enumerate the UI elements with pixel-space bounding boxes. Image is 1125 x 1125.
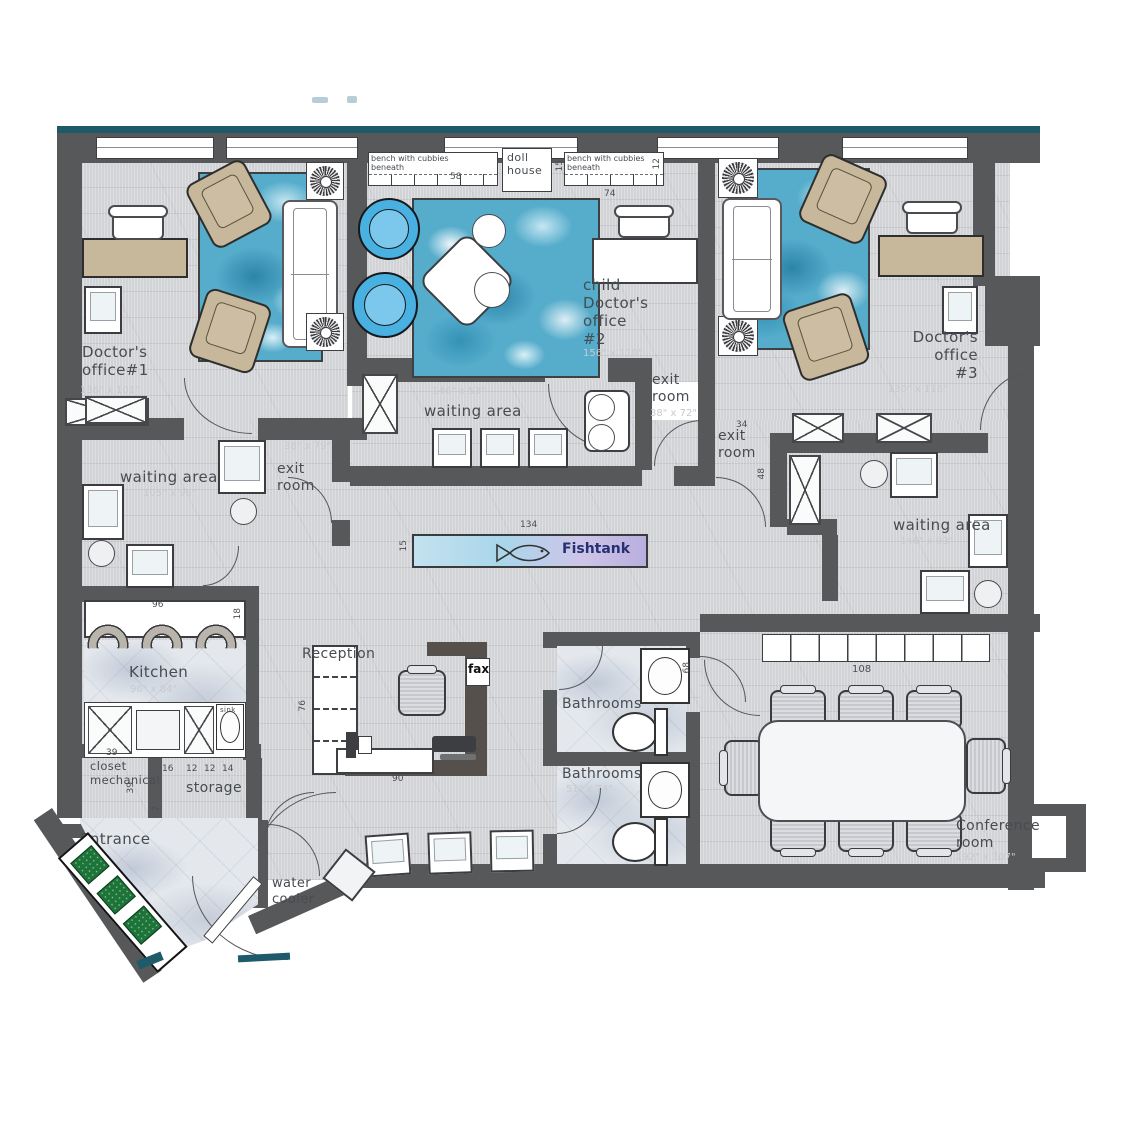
exit-right-hdim: 48 xyxy=(757,468,767,479)
storage-d1: 16 xyxy=(162,764,173,774)
office2-dim: 156" x 110" xyxy=(583,348,643,359)
bathroom-hdim: 68 xyxy=(682,662,692,673)
office1-dim: 136" x 101" xyxy=(80,385,140,396)
sink-label: sink xyxy=(220,706,236,714)
door-arc xyxy=(192,876,288,960)
round-table xyxy=(974,580,1002,608)
blue-chair xyxy=(352,272,418,338)
cabinet-crossed xyxy=(789,455,821,525)
window xyxy=(657,137,779,159)
floor-plan: Doctor's office#1 136" x 101" bench with… xyxy=(0,0,1125,1125)
reception-chair xyxy=(398,670,446,716)
waiting-right-label: waiting area xyxy=(893,516,991,534)
desk-office3 xyxy=(878,235,984,277)
wall xyxy=(258,418,367,440)
reception-label: Reception xyxy=(302,646,375,663)
closet-label: closet mechanical xyxy=(90,760,160,788)
side-chair xyxy=(942,286,978,334)
wall xyxy=(700,614,1040,632)
smudge-mark xyxy=(347,96,357,103)
smudge-mark xyxy=(312,97,328,103)
conference-dim: 192" x 107" xyxy=(956,852,1016,863)
waiting-chair xyxy=(490,830,535,873)
stool xyxy=(474,272,510,308)
stool xyxy=(588,424,615,451)
wall xyxy=(543,690,557,754)
cabinet-shelf xyxy=(136,710,180,750)
office2-label: child Doctor's office #2 xyxy=(583,276,648,348)
waiting-center-dim: 146" x 53" xyxy=(432,386,485,397)
wall xyxy=(822,535,838,601)
waiting-chair xyxy=(427,831,472,875)
storage-label: storage xyxy=(186,780,242,797)
plant-fan xyxy=(718,316,758,356)
conference-table xyxy=(758,720,966,822)
window xyxy=(96,137,214,159)
cabinet-crossed xyxy=(792,413,844,443)
round-table xyxy=(230,498,257,525)
bench-right-hdim: 12 xyxy=(652,158,662,169)
planter-cushion xyxy=(96,875,136,915)
toilet-bowl xyxy=(612,822,658,862)
cabinet-crossed xyxy=(362,374,398,434)
bench-left-label: bench with cubbies beneath xyxy=(371,155,449,173)
waiting-chair xyxy=(890,452,938,498)
waiting-chair xyxy=(126,544,174,588)
wall xyxy=(543,632,700,646)
storage-d4: 14 xyxy=(222,764,233,774)
desk-chair xyxy=(906,208,958,234)
waiting-chair xyxy=(480,428,520,468)
printer-tray xyxy=(440,754,476,760)
storage-d3: 12 xyxy=(204,764,215,774)
storage-d2: 12 xyxy=(186,764,197,774)
wall xyxy=(347,160,367,386)
planter-cushion xyxy=(70,845,110,885)
cabinet-crossed xyxy=(85,396,147,424)
waiting-chair xyxy=(920,570,970,614)
office3-label: Doctor's office #3 xyxy=(868,328,978,382)
bench-left-dim: 58 xyxy=(450,172,461,182)
fax-label: fax xyxy=(468,662,489,676)
round-table xyxy=(860,460,888,488)
reception-wdim: 90 xyxy=(392,774,403,784)
waiting-chair xyxy=(82,484,124,540)
conference-label: Conference room xyxy=(956,818,1040,852)
office3-dim: 130" x 116" xyxy=(888,384,948,395)
side-chair xyxy=(84,286,122,334)
printer xyxy=(432,736,476,752)
top-accent-line xyxy=(57,126,1040,133)
bathrooms-bottom-label: Bathrooms xyxy=(562,766,642,783)
kitchen-label: Kitchen xyxy=(129,663,188,681)
fishtank-wdim: 134 xyxy=(520,520,537,530)
desk-divider xyxy=(314,708,356,710)
reception-hdim: 76 xyxy=(298,700,308,711)
plant-fan xyxy=(718,158,758,198)
desk-office1 xyxy=(82,238,188,278)
cabinet-crossed xyxy=(876,413,932,443)
bathroom-sink xyxy=(640,648,690,704)
window xyxy=(226,137,358,159)
wall xyxy=(985,276,1040,346)
plant-fan xyxy=(306,162,344,200)
toilet-bowl xyxy=(612,712,658,752)
fishtank-hdim: 15 xyxy=(399,540,409,551)
sofa-office3 xyxy=(722,198,782,320)
wall xyxy=(246,758,262,828)
desk-divider xyxy=(314,676,356,678)
waiting-chair xyxy=(528,428,568,468)
exit-left-dim: 38" x 79" xyxy=(284,441,331,452)
waiting-chair xyxy=(218,440,266,494)
kitchen-dim: 96" x 84" xyxy=(130,684,177,695)
waiting-left-label: waiting area xyxy=(120,468,218,486)
kitchen-hdim: 18 xyxy=(233,608,243,619)
desk-chair xyxy=(618,212,670,238)
keyboard xyxy=(358,736,372,754)
desk-chair xyxy=(112,212,164,240)
bench-right-dim: 74 xyxy=(604,189,615,199)
planter-cushion xyxy=(123,905,163,945)
exit-mid-dim: 38" x 72" xyxy=(650,408,697,419)
round-table xyxy=(88,540,115,567)
fishtank-label: Fishtank xyxy=(562,541,630,557)
exit-right-wdim: 34 xyxy=(736,420,747,430)
bathrooms-top-label: Bathrooms xyxy=(562,696,642,713)
toilet-tank xyxy=(654,818,668,866)
exit-mid-label: exit room xyxy=(652,372,690,406)
wall xyxy=(350,466,642,486)
wall xyxy=(543,834,557,874)
bathrooms-bottom-dim: 51" x 74" xyxy=(566,784,613,795)
conference-cab-dim: 108 xyxy=(852,664,871,675)
wall xyxy=(57,133,82,818)
storage-d5: 7 xyxy=(152,806,162,812)
cabinet-crossed xyxy=(88,706,132,754)
window xyxy=(842,137,968,159)
waiting-center-label: waiting area xyxy=(424,402,522,420)
plant-fan xyxy=(306,313,344,351)
waiting-chair xyxy=(432,428,472,468)
toilet-tank xyxy=(654,708,668,756)
bench-right-label: bench with cubbies beneath xyxy=(567,155,645,173)
closet-hdim: 39 xyxy=(126,782,136,793)
blue-chair xyxy=(358,198,420,260)
doll-house-label: doll house xyxy=(507,151,542,177)
wall xyxy=(543,632,557,648)
fish-icon xyxy=(492,540,562,566)
conference-chair xyxy=(966,738,1006,794)
waiting-left-dim: 105" x 96" xyxy=(143,488,196,499)
stool xyxy=(472,214,506,248)
kitchen-wdim: 96 xyxy=(152,600,163,610)
closet-wdim: 39 xyxy=(106,748,117,758)
bathroom-sink xyxy=(640,762,690,818)
office1-label: Doctor's office#1 xyxy=(82,343,149,379)
cabinet-crossed xyxy=(184,706,214,754)
computer xyxy=(346,732,356,758)
wall xyxy=(332,520,350,546)
stool xyxy=(588,394,615,421)
wall xyxy=(770,453,787,527)
waiting-right-dim: 146" x 93" xyxy=(900,536,953,547)
conference-cabinets xyxy=(762,634,990,662)
threshold-accent xyxy=(238,953,290,963)
exit-right-label: exit room xyxy=(718,428,756,462)
wall xyxy=(674,466,715,486)
